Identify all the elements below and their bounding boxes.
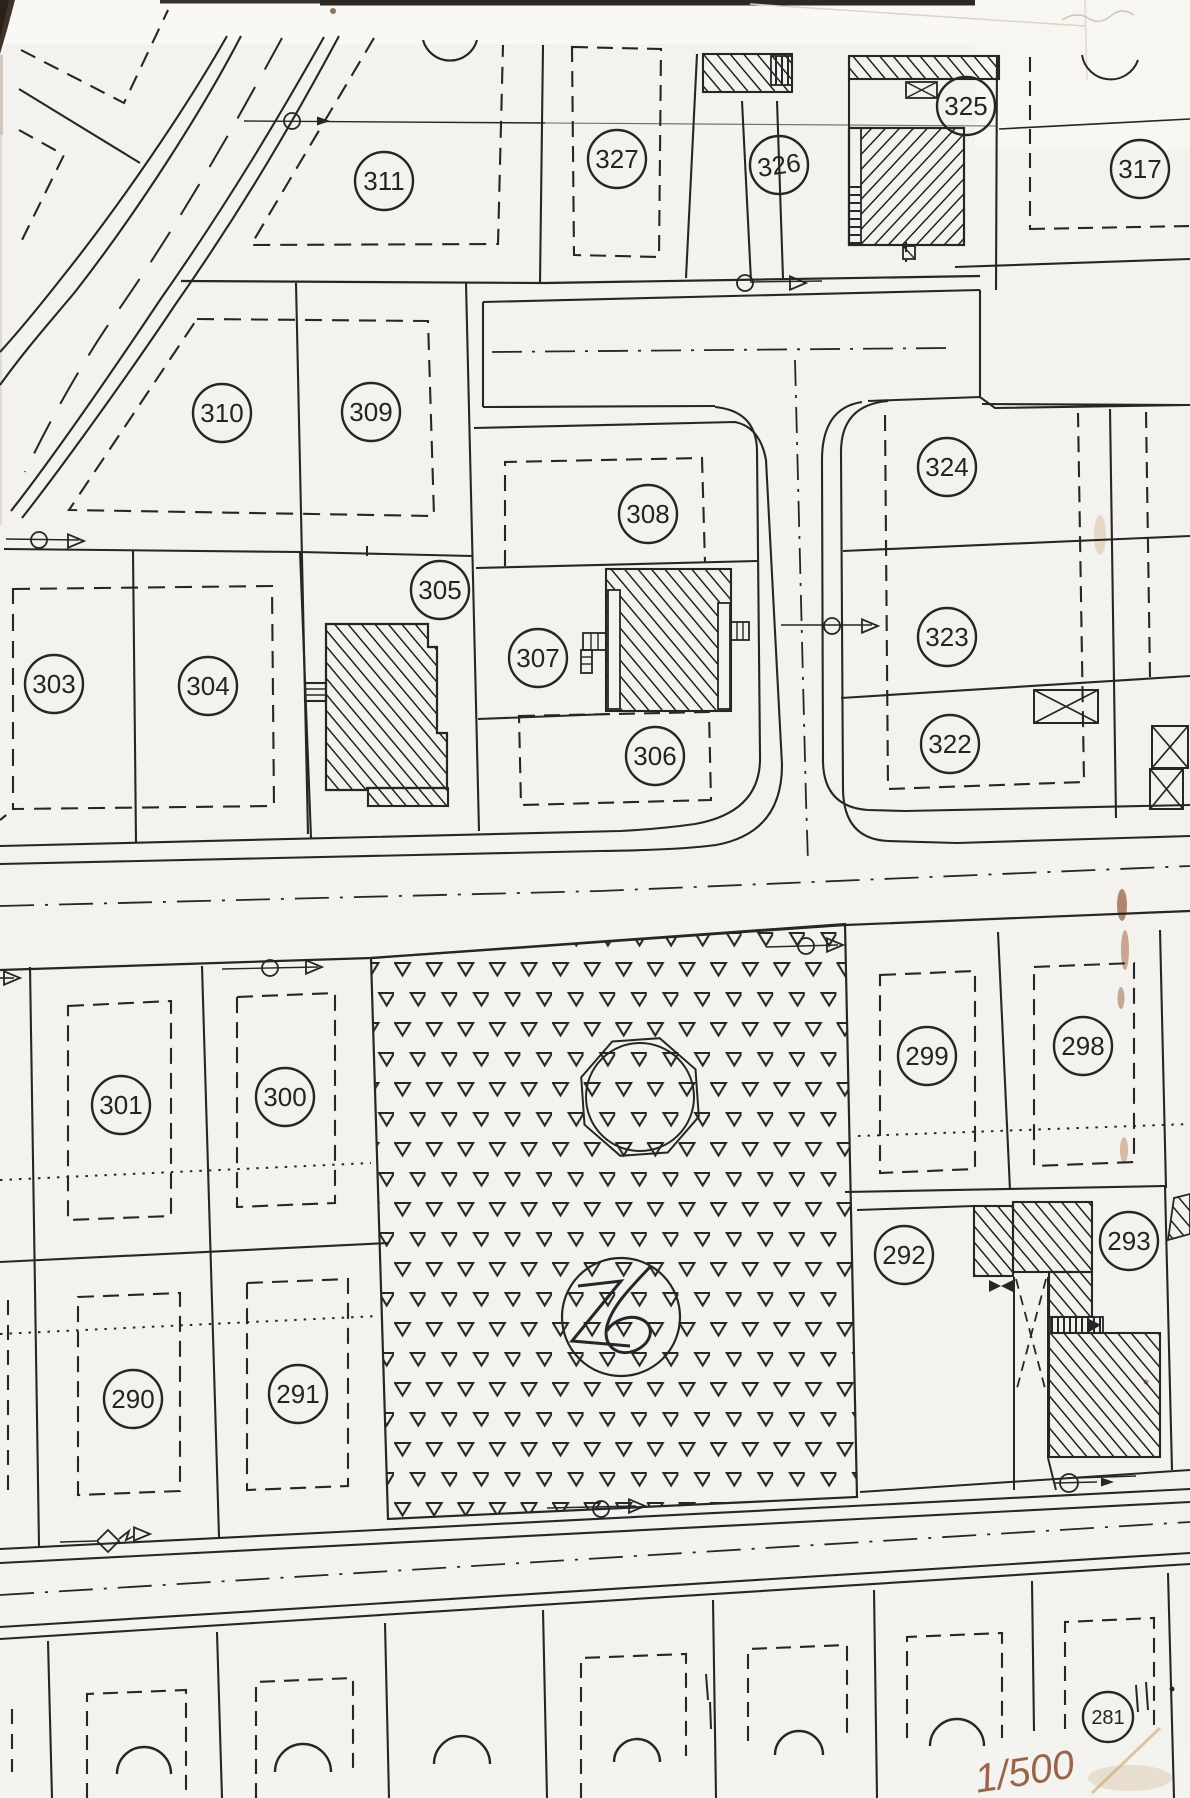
svg-text:292: 292 [882, 1240, 925, 1270]
svg-text:317: 317 [1118, 154, 1161, 184]
svg-text:326: 326 [755, 147, 802, 183]
svg-text:307: 307 [516, 643, 559, 673]
svg-text:324: 324 [925, 452, 968, 482]
svg-text:298: 298 [1061, 1031, 1104, 1061]
svg-text:322: 322 [928, 729, 971, 759]
svg-text:310: 310 [200, 398, 243, 428]
svg-text:291: 291 [276, 1379, 319, 1409]
svg-text:325: 325 [944, 91, 987, 121]
svg-text:300: 300 [263, 1082, 306, 1112]
svg-text:308: 308 [626, 499, 669, 529]
svg-text:323: 323 [925, 622, 968, 652]
svg-text:305: 305 [418, 575, 461, 605]
svg-text:290: 290 [111, 1384, 154, 1414]
svg-text:304: 304 [186, 671, 229, 701]
svg-text:311: 311 [363, 166, 404, 196]
svg-text:301: 301 [99, 1090, 142, 1120]
svg-text:309: 309 [349, 397, 392, 427]
svg-text:293: 293 [1107, 1226, 1150, 1256]
svg-text:281: 281 [1091, 1707, 1124, 1729]
svg-text:306: 306 [633, 741, 676, 771]
svg-text:327: 327 [595, 144, 638, 174]
svg-text:299: 299 [905, 1041, 948, 1071]
svg-text:303: 303 [32, 669, 75, 699]
